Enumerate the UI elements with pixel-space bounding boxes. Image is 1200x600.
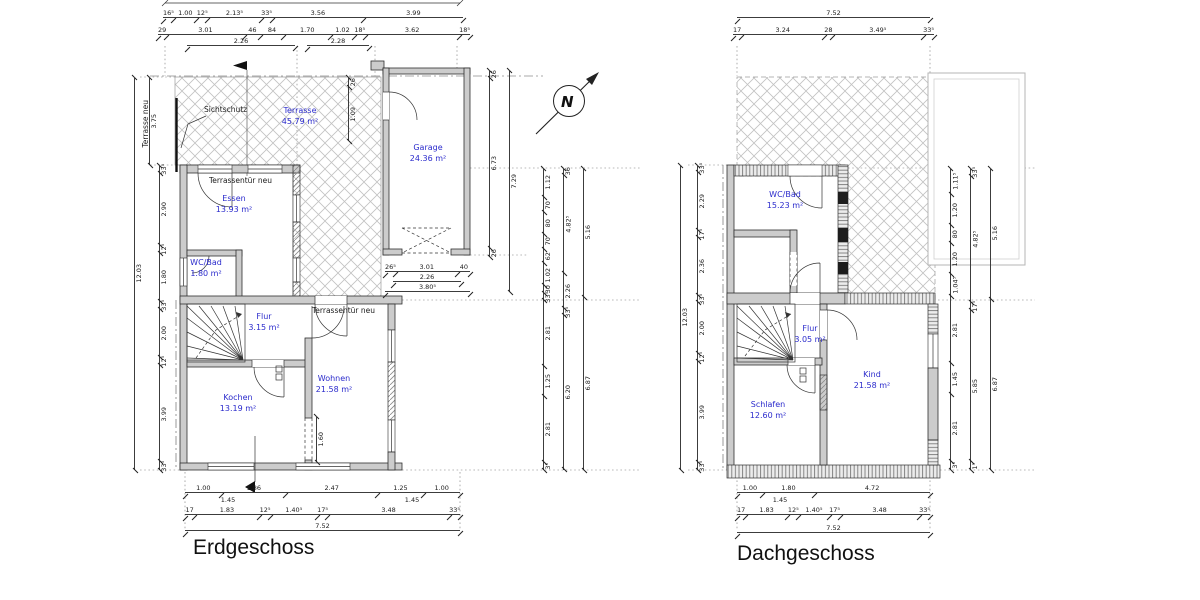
- dim-dg-top-row2: 173.24283.49⁵33⁵: [733, 25, 934, 35]
- room-name: Flur: [248, 312, 279, 323]
- dim-dg-bottom3: 171.8312⁵1.40⁵17⁵3.4833⁵: [737, 505, 930, 515]
- room-area: 15.23 m²: [767, 201, 803, 212]
- dim-dg-top-total: 7.52: [737, 8, 930, 18]
- dim-dg-left-total: 12.03: [680, 165, 690, 470]
- room-name: Flur: [794, 324, 825, 335]
- dim-eg-right3: 5.166.87: [583, 168, 593, 470]
- room-label-essen: Essen 13.93 m²: [216, 194, 252, 216]
- title-erdgeschoss: Erdgeschoss: [193, 536, 314, 560]
- room-name: Kind: [854, 370, 890, 381]
- title-dachgeschoss: Dachgeschoss: [737, 542, 875, 566]
- dim-eg-right2: 364.82⁵2.2633⁵6.20: [563, 168, 573, 470]
- dim-eg-top-row3b: 2.28: [307, 36, 369, 46]
- room-area: 3.05 m²: [794, 335, 825, 346]
- dim-dg-right3: 5.166.87: [990, 168, 1000, 470]
- room-area: 13.93 m²: [216, 205, 252, 216]
- terrassentuer-label-2: Terrassentür neu: [312, 306, 375, 315]
- dim-dg-bottom-total: 7.52: [737, 523, 930, 533]
- room-area: 12.60 m²: [750, 411, 786, 422]
- dim-dg-bottom2: 1.45: [752, 494, 808, 504]
- dim-eg-right1: 1.12708070621.023033⁵2.811.252.813⁵: [543, 168, 553, 470]
- room-label-wc-dg: WC/Bad 15.23 m²: [767, 190, 803, 212]
- dim-eg-garage-height1: 266.7326: [489, 70, 499, 257]
- dim-eg-left-terrasse: 3.75: [149, 77, 159, 165]
- terrassentuer-label-1: Terrassentür neu: [209, 176, 272, 185]
- dim-dg-right2: 33⁵4.82⁵17⁵5.851⁵: [970, 168, 980, 470]
- dim-eg-bottom2b: 1.45: [384, 494, 440, 504]
- terrasse-neu-label: Terrasse neu: [141, 100, 150, 148]
- room-name: Kochen: [220, 393, 256, 404]
- room-area: 3.15 m²: [248, 323, 279, 334]
- room-area: 24.36 m²: [410, 154, 446, 165]
- dim-eg-terrace-v: 261.09: [348, 77, 358, 141]
- dim-eg-bottom2a: 1.45: [200, 494, 256, 504]
- room-area: 21.58 m²: [316, 385, 352, 396]
- dim-dg-left-rooms: 33⁵2.2917⁵2.3633⁵2.0012⁵3.9933⁵: [697, 165, 707, 470]
- sichtschutz-label: Sichtschutz: [204, 105, 247, 114]
- room-name: Wohnen: [316, 374, 352, 385]
- radiator-symbol-eg: [276, 366, 282, 380]
- dim-eg-top-row1: 16⁵1.0012⁵2.13⁵33⁵3.563.99: [163, 8, 463, 18]
- dim-eg-top-row3a: 2.26: [187, 36, 295, 46]
- plan-line-drawing: .wall{fill:#cccccc;stroke:#2f2f2f;stroke…: [0, 0, 1200, 600]
- dim-eg-bottom3: 171.8312⁵1.40⁵17⁵3.4833⁵: [185, 505, 460, 515]
- floorplan-canvas: .wall{fill:#cccccc;stroke:#2f2f2f;stroke…: [0, 0, 1200, 600]
- dim-eg-garage-bottom1: 26⁵3.0140: [385, 262, 470, 272]
- dim-eg-garage-height2: 7.29: [509, 70, 519, 292]
- room-label-kind: Kind 21.58 m²: [854, 370, 890, 392]
- room-label-flur-dg: Flur 3.05 m²: [794, 324, 825, 346]
- dim-eg-bottom-total: 7.52: [185, 521, 460, 531]
- room-label-kochen: Kochen 13.19 m²: [220, 393, 256, 415]
- dim-eg-top-row2: 293.0146841.701.0218⁵3.6218⁵: [158, 25, 470, 35]
- staircase-dg: [737, 304, 795, 362]
- dim-eg-garage-bottom3: 3.80⁵: [385, 282, 470, 292]
- room-label-terrasse: Terrasse 45.79 m²: [282, 106, 318, 128]
- dim-eg-garage-bottom2: 2.26: [393, 272, 461, 282]
- room-area: 13.19 m²: [220, 404, 256, 415]
- room-name: Schlafen: [750, 400, 786, 411]
- dim-eg-opening-v: 1.60: [316, 416, 326, 462]
- room-label-wc-eg: WC/Bad 1.80 m²: [190, 258, 222, 280]
- staircase-eg: [187, 304, 245, 362]
- dim-eg-bottom1: 1.001.862.471.251.00: [185, 483, 460, 493]
- dim-dg-bottom1: 1.001.804.72: [737, 483, 930, 493]
- room-label-flur-eg: Flur 3.15 m²: [248, 312, 279, 334]
- dim-eg-left-rooms: 33⁵2.9012⁵1.8033⁵2.0012⁵3.9933⁵: [159, 165, 169, 470]
- room-name: WC/Bad: [767, 190, 803, 201]
- room-label-garage: Garage 24.36 m²: [410, 143, 446, 165]
- roof-area: [737, 77, 935, 300]
- room-area: 45.79 m²: [282, 117, 318, 128]
- room-name: Garage: [410, 143, 446, 154]
- dachgeschoss-drawing: [688, 46, 1035, 530]
- room-name: Terrasse: [282, 106, 318, 117]
- room-name: Essen: [216, 194, 252, 205]
- north-letter: N: [561, 93, 574, 111]
- room-area: 21.58 m²: [854, 381, 890, 392]
- north-arrow: N: [536, 72, 599, 134]
- room-label-wohnen: Wohnen 21.58 m²: [316, 374, 352, 396]
- flag-marker-icon: [233, 61, 247, 70]
- radiator-symbol-dg: [800, 368, 806, 382]
- room-area: 1.80 m²: [190, 269, 222, 280]
- dim-dg-right1: 1.11⁵1.20801.201.04⁵2.811.452.813⁵: [950, 168, 960, 470]
- room-label-schlafen: Schlafen 12.60 m²: [750, 400, 786, 422]
- room-name: WC/Bad: [190, 258, 222, 269]
